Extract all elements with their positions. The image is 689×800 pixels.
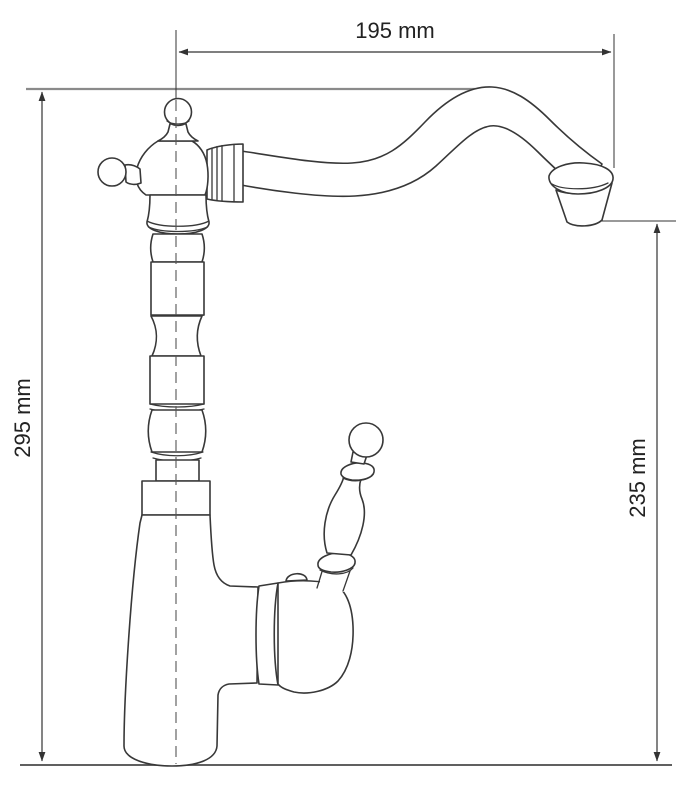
column-barrel [148, 410, 206, 452]
column-bulge-1 [151, 234, 205, 262]
spout-tube [241, 87, 602, 196]
dimension-label-outlet-height: 235 mm [625, 438, 650, 517]
handle-skirt [147, 195, 209, 234]
handle-left-ball [98, 158, 126, 186]
lever-ball [349, 423, 383, 457]
faucet-outline [98, 87, 613, 766]
lever-spindle [324, 476, 364, 555]
dimension-total-height: 295 mm [10, 92, 42, 761]
dimension-label-total-height: 295 mm [10, 378, 35, 457]
technical-drawing-canvas: 295 mm 195 mm 235 mm [0, 0, 689, 800]
lever-lower-collar [318, 553, 355, 572]
handle-left-neck [125, 165, 141, 185]
faucet-technical-drawing: 295 mm 195 mm 235 mm [0, 0, 689, 800]
dimension-outlet-height: 235 mm [600, 221, 676, 761]
cartridge-housing [278, 581, 353, 693]
column-segment-2 [150, 356, 204, 404]
handle-head-body [136, 141, 208, 195]
column-neck [156, 460, 199, 481]
cartridge-dome-bump [286, 574, 307, 581]
lower-body [124, 515, 258, 766]
handle-top-neck [158, 124, 198, 141]
cartridge-ring-band [256, 583, 278, 685]
dimension-label-spout-reach: 195 mm [355, 18, 434, 43]
column-segment-1 [151, 262, 204, 315]
